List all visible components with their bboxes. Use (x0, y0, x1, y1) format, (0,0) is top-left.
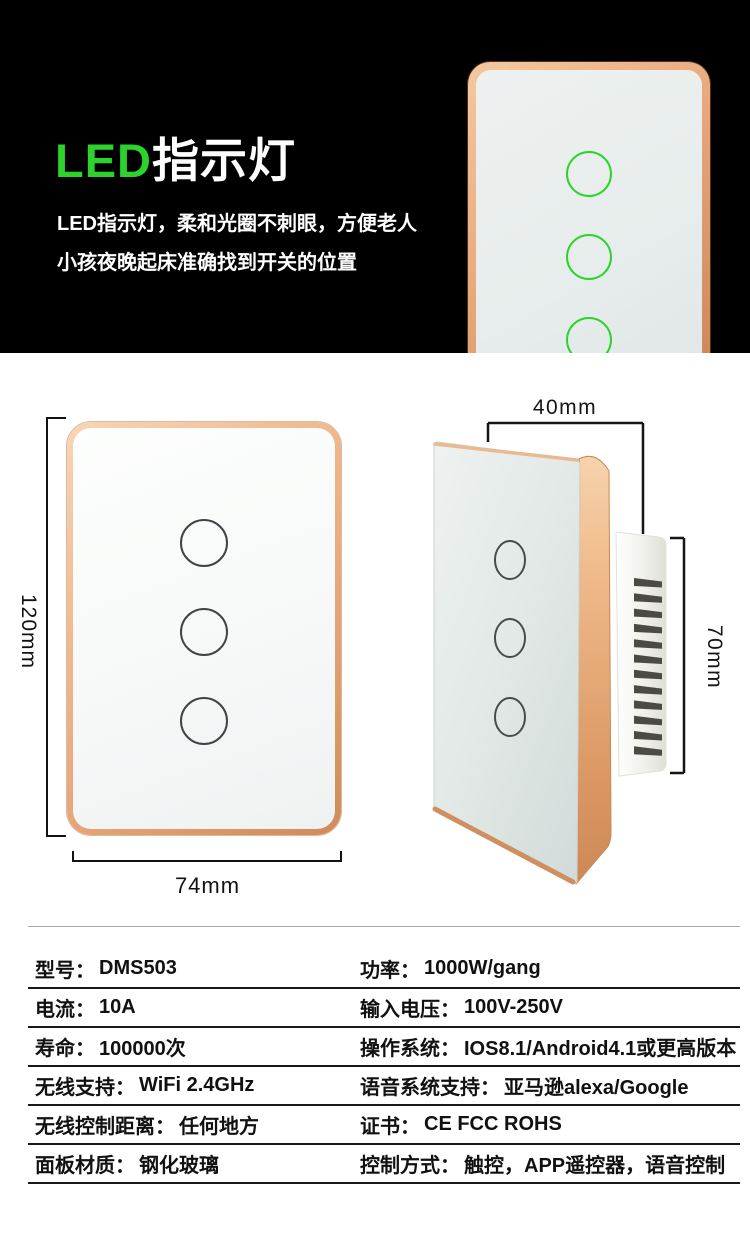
spec-lifespan: 寿命： 100000次 (28, 1032, 360, 1061)
dimension-cap (46, 417, 66, 419)
touch-ring-icon (180, 519, 228, 567)
spec-wireless: 无线支持： WiFi 2.4GHz (28, 1071, 360, 1100)
spec-control-methods: 控制方式： 触控，APP遥控器，语音控制 (360, 1149, 740, 1178)
spec-control-distance: 无线控制距离： 任何地方 (28, 1110, 360, 1139)
table-row: 寿命： 100000次 操作系统： IOS8.1/Android4.1或更高版本 (28, 1028, 740, 1067)
height-dimension-label: 120mm (16, 594, 40, 660)
spec-os: 操作系统： IOS8.1/Android4.1或更高版本 (360, 1032, 740, 1061)
touch-ring-icon (180, 697, 228, 745)
table-row: 无线支持： WiFi 2.4GHz 语音系统支持： 亚马逊alexa/Googl… (28, 1067, 740, 1106)
table-row: 型号： DMS503 功率： 1000W/gang (28, 950, 740, 989)
product-photo-front-lit (468, 62, 710, 353)
dimension-tick (72, 851, 74, 862)
spec-table: 型号： DMS503 功率： 1000W/gang 电流： 10A 输入电压： … (28, 950, 740, 1184)
title-led-highlight: LED (55, 134, 152, 187)
glass-face (476, 70, 702, 353)
hero-description-line2: 小孩夜晚起床准确找到开关的位置 (57, 246, 357, 275)
table-row: 无线控制距离： 任何地方 证书： CE FCC ROHS (28, 1106, 740, 1145)
title-cn: 指示灯 (152, 134, 296, 187)
height-dimension-line (46, 417, 48, 837)
gold-frame-edge (576, 456, 611, 884)
dimension-cap (46, 835, 66, 837)
front-view-panel (67, 422, 341, 835)
dimension-diagrams: 120mm 74mm (0, 353, 750, 940)
body-height-dimension-label: 70mm (703, 625, 726, 689)
hero-description-line1: LED指示灯，柔和光圈不刺眼，方便老人 (57, 207, 417, 236)
width-dimension-label: 74mm (140, 873, 275, 899)
table-top-divider (28, 926, 740, 927)
page-title: LED指示灯 (55, 135, 296, 187)
spec-model: 型号： DMS503 (28, 954, 360, 983)
spec-panel-material: 面板材质： 钢化玻璃 (28, 1149, 360, 1178)
spec-input-voltage: 输入电压： 100V-250V (360, 993, 740, 1022)
dimension-tick (340, 851, 342, 862)
body-height-dimension (670, 538, 684, 773)
table-row: 面板材质： 钢化玻璃 控制方式： 触控，APP遥控器，语音控制 (28, 1145, 740, 1184)
spec-certificates: 证书： CE FCC ROHS (360, 1110, 740, 1139)
spec-current: 电流： 10A (28, 993, 360, 1022)
touch-ring-icon (566, 317, 612, 353)
hero-banner: LED指示灯 LED指示灯，柔和光圈不刺眼，方便老人 小孩夜晚起床准确找到开关的… (0, 0, 750, 353)
width-dimension-line (72, 860, 342, 862)
spec-power: 功率： 1000W/gang (360, 954, 740, 983)
depth-dimension-label: 40mm (533, 396, 597, 419)
spec-voice-support: 语音系统支持： 亚马逊alexa/Google (360, 1071, 740, 1100)
touch-ring-icon (566, 151, 612, 197)
side-view-diagram: 40mm 70mm (420, 395, 750, 900)
table-row: 电流： 10A 输入电压： 100V-250V (28, 989, 740, 1028)
mounting-body (616, 532, 666, 776)
touch-ring-icon (180, 608, 228, 656)
product-detail-page: LED指示灯 LED指示灯，柔和光圈不刺眼，方便老人 小孩夜晚起床准确找到开关的… (0, 0, 750, 1242)
touch-ring-icon (566, 234, 612, 280)
glass-face (73, 428, 335, 829)
